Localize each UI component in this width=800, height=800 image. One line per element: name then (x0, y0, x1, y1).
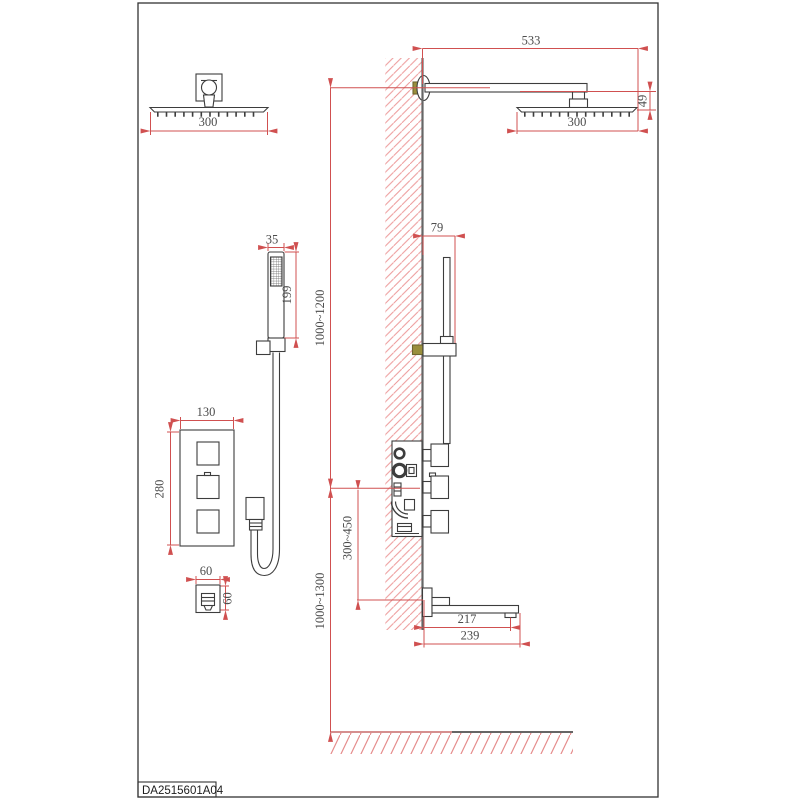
knob-side-2 (431, 476, 449, 499)
dim-head-front-width-label: 300 (199, 115, 218, 129)
floor-section-hatch (330, 732, 573, 754)
dim-handshower-length-label: 199 (280, 286, 294, 305)
knob-stem-3 (423, 516, 431, 528)
knob-stem-1 (423, 450, 431, 462)
dim-valve-plate-height-label: 280 (153, 480, 167, 499)
hose-nut (250, 520, 263, 531)
dim-valve-plate-width-label: 130 (197, 405, 216, 419)
dim-outlet-height-label: 60 (221, 592, 235, 605)
outlet-box (196, 585, 220, 613)
handshower-holder (257, 341, 271, 355)
dim-spout-reach-label: 217 (458, 612, 477, 626)
knob-side-3 (431, 511, 449, 534)
dim-handshower-width-label: 35 (266, 233, 279, 247)
hose-loop-inner (258, 530, 274, 569)
spout-outlet (505, 613, 516, 618)
ball-joint (202, 80, 217, 95)
knob-stem-2 (423, 482, 431, 494)
dim-arm-height-range-label: 1000~1200 (313, 290, 327, 347)
knob-side-1 (431, 444, 449, 467)
dim-slidebar-offset-label: 79 (431, 221, 444, 235)
valve-lower-block (405, 500, 415, 511)
valve-trim-view (180, 430, 234, 546)
dim-spout-length-label: 239 (461, 629, 480, 643)
shower-arm-side-view (413, 76, 637, 115)
wall-outlet-view (196, 585, 220, 613)
dim-valve-to-spout-range-label: 300~450 (341, 516, 355, 560)
dim-head-side-width-label: 300 (568, 115, 587, 129)
dim-head-drop-label: 49 (636, 95, 650, 108)
wall-section-hatch (385, 58, 423, 630)
title-block-code: DA2515601A04 (142, 785, 224, 797)
head-plate-side (517, 108, 637, 113)
handshower-spray-face (271, 257, 283, 286)
drawing-canvas: DA2515601A04 (0, 0, 800, 800)
valve-plate (180, 430, 234, 546)
head-ball-block (570, 99, 588, 108)
wall-hatch-band (385, 58, 423, 630)
floor-hatch-band (330, 733, 573, 754)
slide-bar-clamp (441, 337, 454, 344)
spout-neck (432, 598, 450, 606)
dim-outlet-width-label: 60 (200, 564, 213, 578)
dim-arm-length-label: 533 (522, 34, 541, 48)
bracket-wall-anchor (413, 345, 424, 355)
valve-bottom-nut (398, 524, 412, 532)
arm-connector (573, 92, 585, 99)
head-plate (150, 108, 268, 113)
slide-bar-bracket (423, 344, 456, 357)
in-wall-valve-body (392, 441, 449, 537)
hose-outlet-elbow (246, 498, 264, 520)
overhead-shower-front-view (150, 74, 268, 115)
shower-system-installation-drawing: DA2515601A04 (0, 0, 800, 800)
dim-valve-height-range-label: 1000~1300 (313, 573, 327, 630)
head-stem (204, 95, 215, 107)
